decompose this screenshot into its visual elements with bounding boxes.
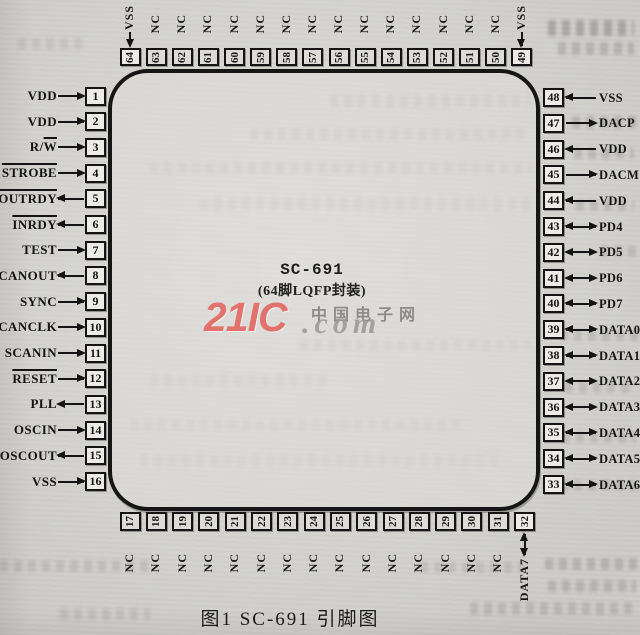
pin-box: 64 [120, 48, 141, 66]
pin-number: 55 [359, 52, 371, 63]
pin-box: 16 [85, 472, 106, 491]
pin-arrow [565, 299, 597, 309]
pin-number: 2 [93, 114, 99, 129]
pin-box: 60 [224, 48, 245, 66]
pin-number: 33 [548, 477, 560, 492]
pin-number: 47 [548, 116, 560, 131]
pin-arrow [57, 91, 85, 101]
pin-number: 16 [90, 474, 102, 489]
pin-number: 39 [548, 322, 560, 337]
pin-box: 52 [433, 48, 454, 66]
pin-arrow [517, 31, 527, 47]
pin-box: 63 [146, 48, 167, 66]
pin-label: DATA1 [599, 347, 640, 365]
pin-number: 42 [548, 245, 560, 260]
pin-number: 29 [440, 516, 452, 527]
pin-box: 27 [383, 512, 404, 531]
pin-label: NC [227, 553, 242, 572]
pin-label: DATA0 [599, 321, 640, 339]
pin-number: 14 [90, 423, 102, 438]
pin-label: OUTRDY [0, 190, 57, 208]
pin-arrow [57, 451, 85, 461]
pin-label: NC [122, 553, 137, 572]
pin-label: NC [462, 14, 477, 33]
pinout-figure: SC-691 (64脚LQFP封装) 21IC 中国电子网 .com 1VDD2… [0, 0, 640, 635]
pin-box: 20 [198, 512, 219, 531]
pin-arrow [57, 245, 85, 255]
pin-number: 19 [177, 516, 189, 527]
pin-arrow [565, 273, 597, 283]
pin-number: 43 [548, 219, 560, 234]
pin-box: 34 [543, 449, 564, 468]
pin-box: 41 [543, 269, 564, 288]
pin-label: VSS [32, 473, 57, 491]
pin-box: 17 [120, 512, 141, 531]
pin-arrow [565, 222, 597, 232]
pin-label: NC [357, 14, 372, 33]
pin-arrow [565, 170, 597, 180]
pin-number: 34 [548, 451, 560, 466]
pin-box: 56 [329, 48, 350, 66]
pin-label: NC [279, 14, 294, 33]
pin-arrow [57, 477, 85, 487]
pin-number: 18 [150, 516, 162, 527]
pin-label: NC [385, 553, 400, 572]
pin-number: 60 [229, 52, 241, 63]
pin-number: 23 [282, 516, 294, 527]
pin-label: INRDY [12, 216, 57, 234]
pin-label: VSS [122, 5, 137, 30]
pin-label: NC [201, 553, 216, 572]
pin-arrow [565, 376, 597, 386]
pin-number: 27 [387, 516, 399, 527]
pin-layer: 1VDD2VDD3R/W4STROBE5OUTRDY6INRDY7TEST8SC… [0, 0, 640, 635]
pin-number: 11 [90, 346, 101, 361]
pin-number: 24 [308, 516, 320, 527]
pin-box: 40 [543, 294, 564, 313]
pin-box: 13 [85, 395, 106, 414]
pin-label: DATA2 [599, 372, 640, 390]
pin-box: 37 [543, 372, 564, 391]
pin-box: 4 [85, 164, 106, 183]
pin-number: 57 [307, 52, 319, 63]
pin-box: 15 [85, 446, 106, 465]
pin-label: NC [280, 553, 295, 572]
pin-label: NC [200, 14, 215, 33]
pin-arrow [57, 220, 85, 230]
pin-number: 3 [93, 140, 99, 155]
pin-label: PD6 [599, 269, 623, 287]
pin-label: PD4 [599, 218, 623, 236]
pin-label: DATA7 [517, 558, 532, 601]
pin-number: 36 [548, 400, 560, 415]
pin-arrow [565, 93, 597, 103]
pin-label: VSS [599, 89, 623, 107]
pin-number: 8 [93, 268, 99, 283]
pin-label: OSCOUT [0, 447, 57, 465]
pin-label: NC [306, 553, 321, 572]
pin-arrow [57, 142, 85, 152]
pin-number: 32 [519, 516, 531, 527]
pin-box: 26 [356, 512, 377, 531]
pin-arrow [57, 297, 85, 307]
pin-box: 5 [85, 189, 106, 208]
pin-number: 21 [229, 516, 241, 527]
pin-box: 51 [459, 48, 480, 66]
pin-arrow [565, 196, 597, 206]
pin-label: SYNC [20, 293, 57, 311]
pin-box: 58 [276, 48, 297, 66]
pin-number: 46 [548, 142, 560, 157]
pin-box: 33 [543, 475, 564, 494]
pin-number: 53 [411, 52, 423, 63]
pin-arrow [57, 348, 85, 358]
pin-box: 32 [514, 512, 535, 531]
pin-box: 19 [172, 512, 193, 531]
pin-number: 20 [203, 516, 215, 527]
pin-number: 1 [93, 89, 99, 104]
pin-number: 26 [361, 516, 373, 527]
pin-label: DATA4 [599, 424, 640, 442]
pin-number: 25 [334, 516, 346, 527]
pin-box: 25 [330, 512, 351, 531]
pin-label: DATA5 [599, 450, 640, 468]
pin-box: 42 [543, 243, 564, 262]
figure-caption: 图1 SC-691 引脚图 [100, 604, 480, 631]
pin-box: 59 [250, 48, 271, 66]
pin-label: NC [174, 14, 189, 33]
pin-number: 63 [150, 52, 162, 63]
pin-number: 10 [90, 320, 102, 335]
pin-box: 23 [277, 512, 298, 531]
pin-number: 50 [490, 52, 502, 63]
pin-label: NC [148, 553, 163, 572]
pin-label: RESET [12, 370, 57, 388]
pin-box: 46 [543, 140, 564, 159]
pin-label: NC [359, 553, 374, 572]
pin-box: 29 [435, 512, 456, 531]
pin-label: OSCIN [14, 421, 57, 439]
pin-arrow [57, 322, 85, 332]
pin-box: 48 [543, 88, 564, 107]
pin-label: NC [254, 553, 269, 572]
pin-box: 39 [543, 320, 564, 339]
pin-arrow [565, 454, 597, 464]
pin-number: 9 [93, 294, 99, 309]
pin-arrow [565, 325, 597, 335]
pin-box: 35 [543, 423, 564, 442]
pin-box: 22 [251, 512, 272, 531]
pin-number: 13 [90, 397, 102, 412]
pin-box: 44 [543, 191, 564, 210]
pin-label: VDD [599, 140, 627, 158]
pin-label: PD5 [599, 243, 623, 261]
pin-arrow [520, 533, 530, 556]
pin-number: 49 [516, 52, 528, 63]
pin-box: 28 [409, 512, 430, 531]
pin-box: 2 [85, 112, 106, 131]
pin-arrow [57, 425, 85, 435]
pin-arrow [57, 271, 85, 281]
pin-label: NC [488, 14, 503, 33]
pin-arrow [565, 144, 597, 154]
pin-box: 38 [543, 346, 564, 365]
pin-arrow [57, 374, 85, 384]
pin-label: NC [409, 14, 424, 33]
pin-box: 12 [85, 369, 106, 388]
pin-number: 5 [93, 191, 99, 206]
pin-label: SCANOUT [0, 267, 57, 285]
pin-number: 61 [202, 52, 214, 63]
pin-number: 6 [93, 217, 99, 232]
pin-box: 8 [85, 266, 106, 285]
pin-label: NC [148, 14, 163, 33]
pin-box: 6 [85, 215, 106, 234]
pin-label: DACP [599, 114, 635, 132]
pin-box: 36 [543, 398, 564, 417]
pin-label: NC [464, 553, 479, 572]
pin-box: 54 [381, 48, 402, 66]
pin-label: NC [331, 14, 346, 33]
pin-number: 56 [333, 52, 345, 63]
pin-label: VDD [28, 87, 57, 105]
pin-number: 4 [93, 166, 99, 181]
pin-label: SCANCLK [0, 318, 57, 336]
pin-number: 15 [90, 448, 102, 463]
pin-box: 11 [85, 344, 106, 363]
pin-label: SCANIN [5, 344, 57, 362]
pin-box: 1 [85, 87, 106, 106]
pin-label: VDD [599, 192, 627, 210]
pin-box: 9 [85, 292, 106, 311]
pin-arrow [565, 351, 597, 361]
pin-label: NC [490, 553, 505, 572]
pin-label: NC [175, 553, 190, 572]
pin-number: 64 [124, 52, 136, 63]
pin-box: 24 [304, 512, 325, 531]
pin-arrow [565, 428, 597, 438]
pin-box: 47 [543, 114, 564, 133]
pin-number: 52 [438, 52, 450, 63]
pin-label: TEST [22, 241, 57, 259]
pin-number: 38 [548, 348, 560, 363]
pin-arrow [565, 118, 597, 128]
pin-box: 10 [85, 318, 106, 337]
pin-box: 45 [543, 165, 564, 184]
pin-number: 59 [255, 52, 267, 63]
pin-box: 43 [543, 217, 564, 236]
pin-number: 51 [464, 52, 476, 63]
pin-number: 48 [548, 90, 560, 105]
pin-box: 57 [302, 48, 323, 66]
pin-number: 31 [492, 516, 504, 527]
pin-label: DACM [599, 166, 639, 184]
pin-label: NC [438, 553, 453, 572]
pin-box: 62 [172, 48, 193, 66]
pin-label: NC [305, 14, 320, 33]
pin-number: 35 [548, 425, 560, 440]
pin-number: 62 [176, 52, 188, 63]
pin-arrow [57, 168, 85, 178]
pin-label: NC [253, 14, 268, 33]
pin-arrow [125, 31, 135, 47]
pin-box: 18 [146, 512, 167, 531]
pin-label: NC [227, 14, 242, 33]
pin-label: PLL [31, 395, 57, 413]
pin-arrow [565, 480, 597, 490]
pin-label: STROBE [2, 164, 57, 182]
pin-arrow [57, 194, 85, 204]
pin-box: 55 [355, 48, 376, 66]
pin-box: 53 [407, 48, 428, 66]
pin-box: 30 [461, 512, 482, 531]
pin-label: VSS [514, 5, 529, 30]
pin-box: 31 [488, 512, 509, 531]
pin-number: 7 [93, 243, 99, 258]
pin-arrow [57, 399, 85, 409]
pin-number: 17 [124, 516, 136, 527]
pin-label: NC [383, 14, 398, 33]
pin-arrow [57, 117, 85, 127]
pin-number: 30 [466, 516, 478, 527]
pin-label: NC [332, 553, 347, 572]
pin-number: 22 [256, 516, 268, 527]
pin-label: PD7 [599, 295, 623, 313]
pin-box: 21 [225, 512, 246, 531]
pin-number: 37 [548, 374, 560, 389]
pin-label: NC [436, 14, 451, 33]
pin-box: 50 [485, 48, 506, 66]
pin-box: 3 [85, 138, 106, 157]
pin-label: DATA3 [599, 398, 640, 416]
pin-arrow [565, 402, 597, 412]
pin-number: 44 [548, 193, 560, 208]
pin-number: 58 [281, 52, 293, 63]
pin-label: NC [411, 553, 426, 572]
pin-arrow [565, 247, 597, 257]
pin-number: 12 [90, 371, 102, 386]
pin-label: R/W [30, 138, 57, 156]
pin-label: VDD [28, 113, 57, 131]
pin-number: 41 [548, 271, 560, 286]
pin-box: 7 [85, 241, 106, 260]
pin-number: 40 [548, 296, 560, 311]
pin-box: 49 [511, 48, 532, 66]
pin-box: 14 [85, 421, 106, 440]
pin-number: 28 [413, 516, 425, 527]
pin-number: 54 [385, 52, 397, 63]
pin-number: 45 [548, 167, 560, 182]
pin-label: DATA6 [599, 476, 640, 494]
pin-box: 61 [198, 48, 219, 66]
